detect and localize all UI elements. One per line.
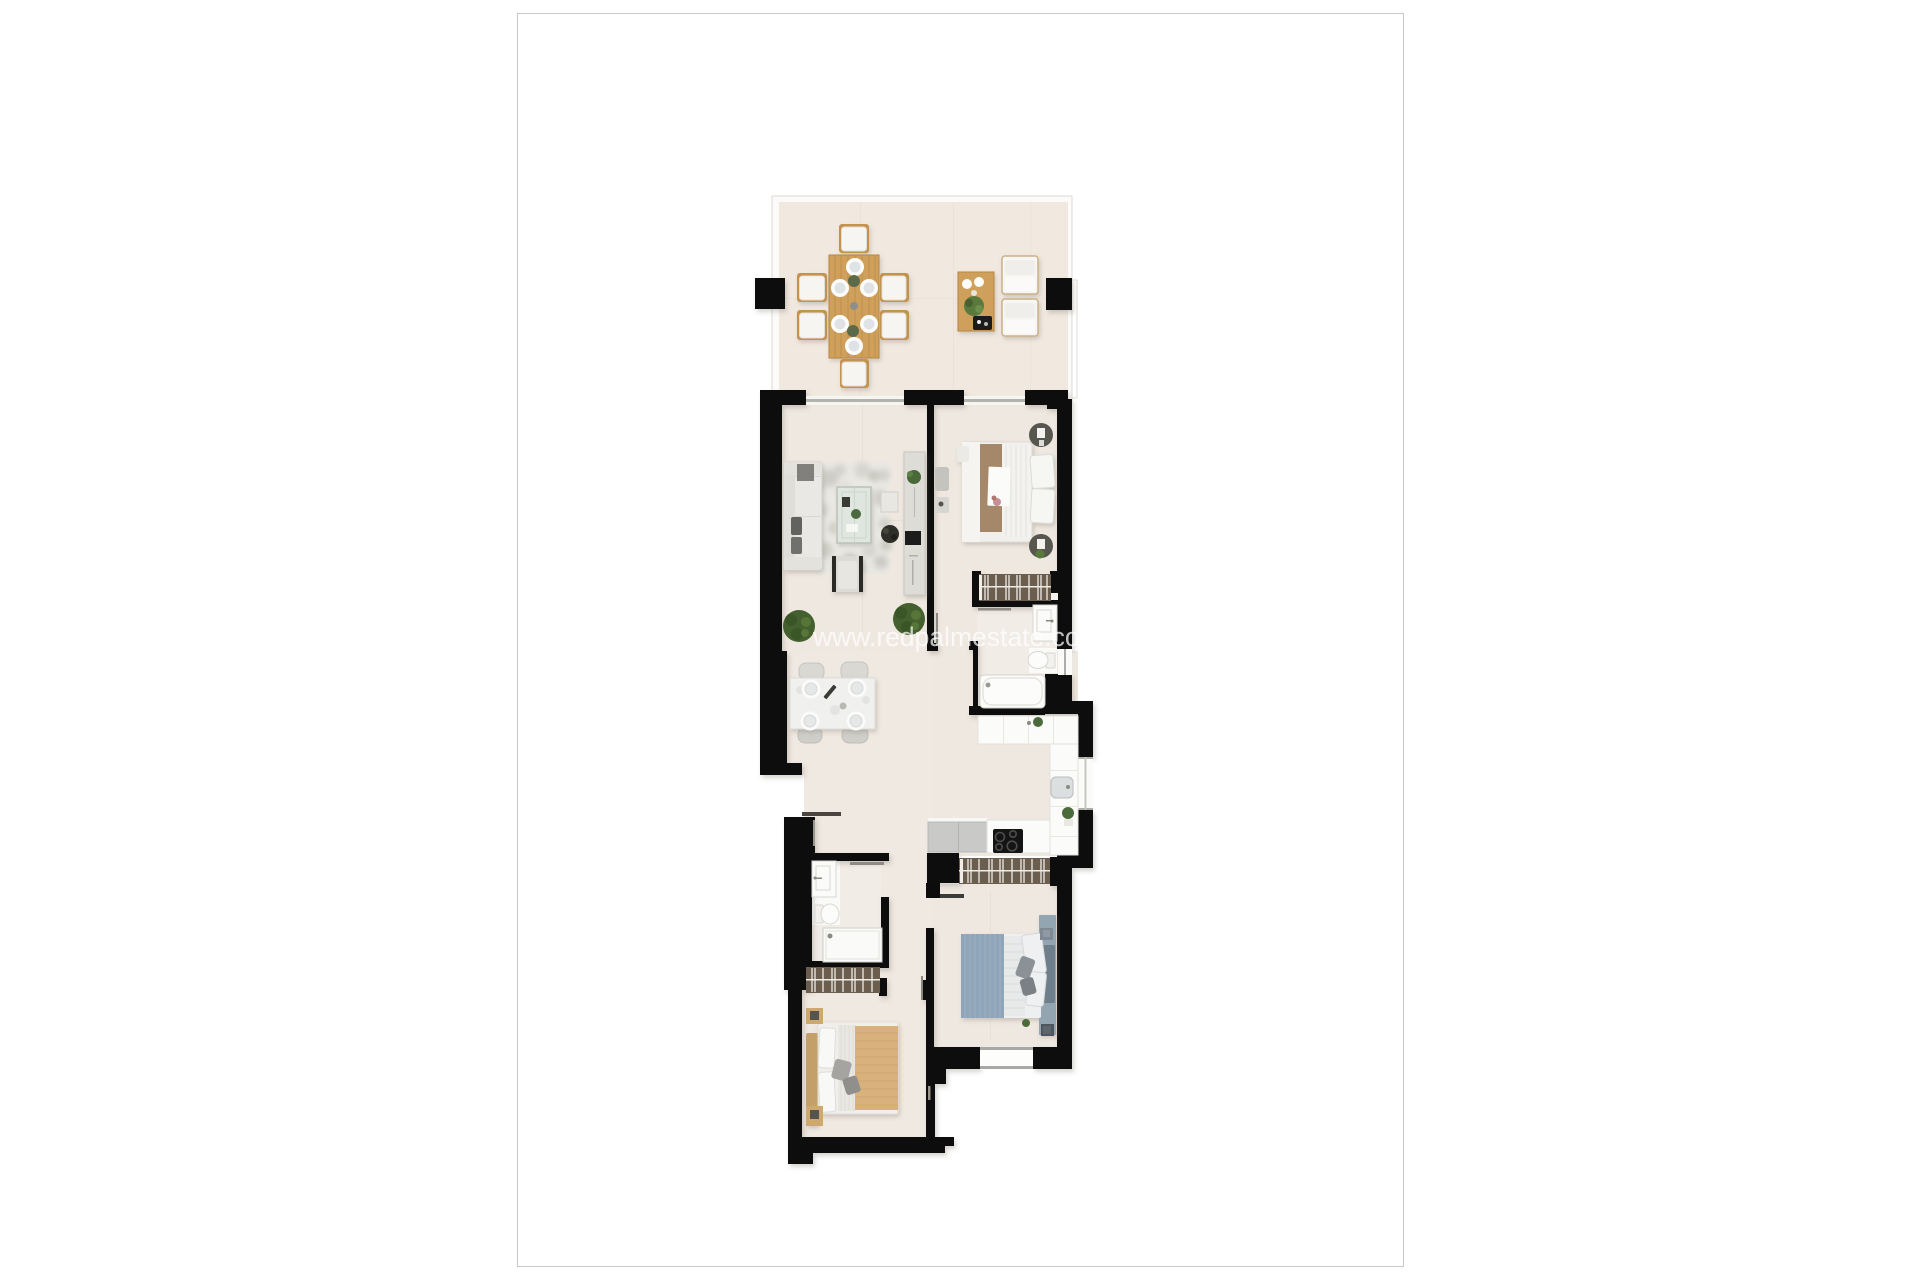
svg-text:www.redpalmestate.com: www.redpalmestate.com [812,622,1102,652]
